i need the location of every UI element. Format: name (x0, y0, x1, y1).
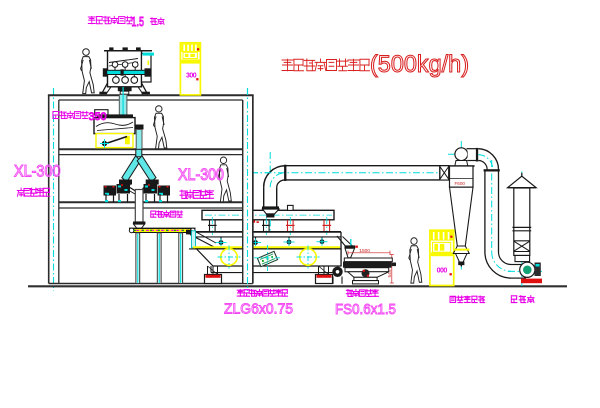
svg-text:1500: 1500 (359, 248, 370, 254)
svg-text:350: 350 (89, 111, 107, 123)
svg-text:XL-300: XL-300 (178, 166, 224, 184)
svg-text:FS0.6x1.5: FS0.6x1.5 (335, 301, 396, 318)
svg-text:1.5: 1.5 (132, 14, 145, 29)
svg-text:300: 300 (186, 73, 197, 80)
svg-text:XL-300: XL-300 (14, 163, 61, 181)
svg-text:(500kg/h): (500kg/h) (370, 51, 469, 78)
svg-text:F600: F600 (455, 181, 466, 186)
svg-text:ZLG6x0.75: ZLG6x0.75 (224, 301, 293, 318)
svg-text:000: 000 (437, 268, 448, 275)
